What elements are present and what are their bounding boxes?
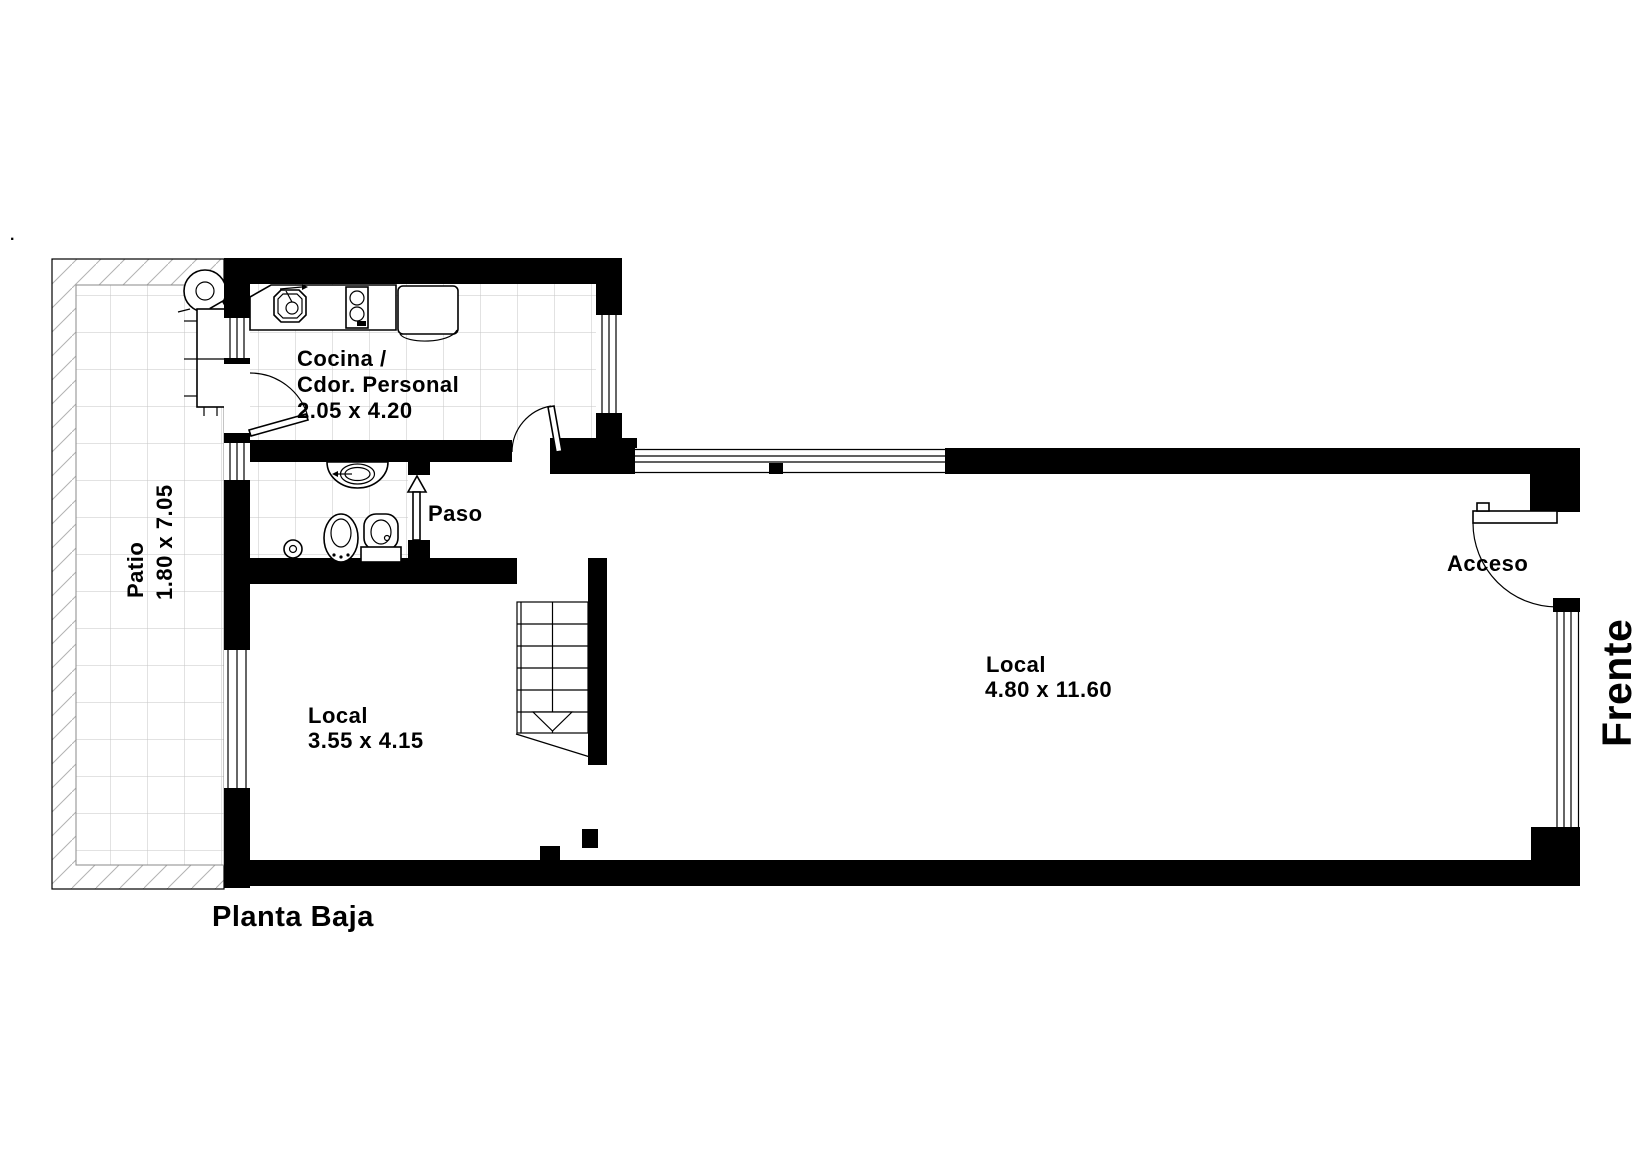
refrigerator-icon <box>398 286 458 341</box>
wall-segment <box>540 846 560 862</box>
paso-label: Paso <box>428 501 483 526</box>
kitchen-dims-label: 2.05 x 4.20 <box>297 398 413 423</box>
window-kitchen-left <box>224 318 250 358</box>
main-local-dims-label: 4.80 x 11.60 <box>985 677 1112 702</box>
floor-plan-svg: Patio 1.80 x 7.05 Cocina / Cdor. Persona… <box>0 0 1640 1171</box>
wall-segment <box>224 440 512 462</box>
toilet-icon <box>361 514 401 562</box>
frente-label: Frente <box>1594 619 1640 747</box>
floor-title: Planta Baja <box>212 901 374 933</box>
wall-segment <box>408 540 430 558</box>
stray-dot: . <box>10 227 15 244</box>
wall-segment <box>945 448 1580 474</box>
floor-plan-page: Patio 1.80 x 7.05 Cocina / Cdor. Persona… <box>0 0 1640 1171</box>
small-local-dims-label: 3.55 x 4.15 <box>308 728 424 753</box>
window-frente-right <box>1553 612 1580 827</box>
bathroom-door <box>408 476 426 540</box>
window-kitchen-right <box>596 315 622 413</box>
window-local-top <box>635 448 945 474</box>
window-bathroom-left <box>224 443 250 480</box>
patio-door-opening <box>224 364 250 433</box>
wall-segment <box>408 462 430 475</box>
stairs-direction-arrow <box>533 712 572 731</box>
bidet-icon <box>324 514 358 562</box>
small-local-label: Local <box>308 703 368 728</box>
patio-label: Patio <box>123 542 148 598</box>
patio-dims-label: 1.80 x 7.05 <box>152 484 177 600</box>
main-local-label: Local <box>986 652 1046 677</box>
wall-segment <box>588 558 607 765</box>
kitchen-label-line2: Cdor. Personal <box>297 372 459 397</box>
stairs-down <box>516 602 590 757</box>
stairs-cut-line <box>516 734 590 757</box>
wall-segment <box>582 829 598 848</box>
wall-segment <box>224 258 622 284</box>
wall-segment <box>1530 474 1580 512</box>
acceso-label: Acceso <box>1447 551 1528 576</box>
stove-icon <box>346 287 368 328</box>
wall-segment <box>550 438 637 474</box>
kitchen-counter <box>250 285 396 330</box>
wall-segment <box>1553 598 1580 614</box>
window-small-local-left <box>224 650 250 788</box>
kitchen-label-line1: Cocina / <box>297 346 387 371</box>
wall-segment <box>224 860 1580 886</box>
